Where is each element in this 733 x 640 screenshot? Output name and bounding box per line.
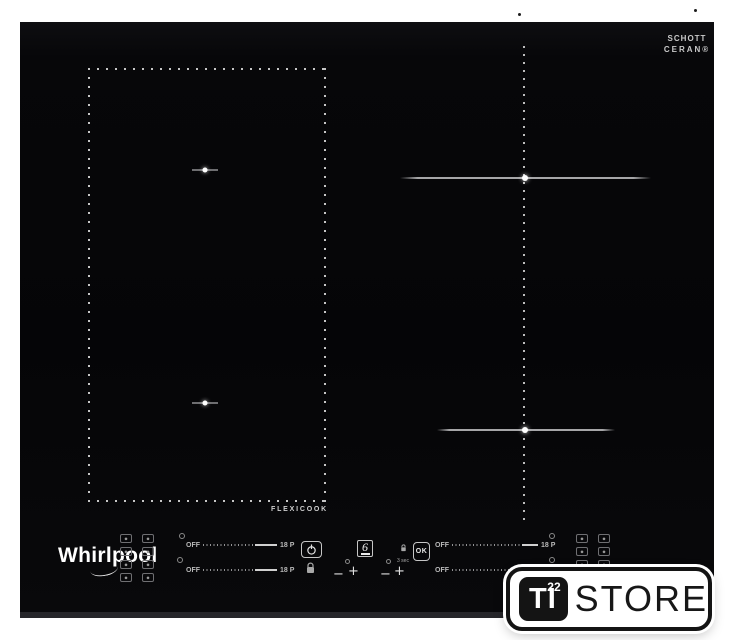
slider-off-label: OFF [186, 567, 200, 574]
timer-indicator-icon [120, 560, 132, 569]
dust-speck [518, 13, 521, 16]
timer-indicator-icon [120, 547, 132, 556]
timer-indicator-icon [576, 547, 588, 556]
power-button[interactable] [301, 541, 322, 558]
zone-power-indicator-dot [549, 533, 555, 539]
flexicook-border-right [324, 68, 326, 502]
cookware-indicator-icon [142, 560, 154, 569]
store-text: STORE [575, 578, 708, 620]
schott-logo-line2: CERAN® [660, 44, 714, 55]
ti22-badge: TI 22 [519, 577, 568, 621]
timer-indicator-icon [120, 534, 132, 543]
timer-indicator-dot [386, 559, 391, 564]
slider-solid-track[interactable] [255, 544, 277, 546]
minus-button[interactable]: − [380, 568, 391, 581]
flexicook-border-top [88, 68, 326, 70]
power-slider-front-left[interactable]: OFF 18 P [186, 541, 294, 549]
slider-solid-track[interactable] [255, 569, 277, 571]
ok-hold-hint: 3 sec [395, 539, 411, 564]
six-underline [361, 553, 370, 555]
cooktop-glass-surface: SCHOTT CERAN® FLEXICOOK Whirlpool [20, 22, 714, 618]
slider-off-label: OFF [435, 567, 449, 574]
slider-max-label: 18 P [280, 542, 294, 549]
ok-button[interactable]: OK [413, 542, 430, 561]
slider-dotted-track[interactable] [203, 569, 253, 571]
schott-ceran-logo: SCHOTT CERAN® [660, 33, 714, 55]
zone-power-indicator-dot [549, 557, 555, 563]
cookware-indicator-icon [142, 547, 154, 556]
ti22store-watermark: TI 22 STORE [506, 567, 712, 631]
timer-indicator-icon [576, 534, 588, 543]
six-glyph: 6 [362, 542, 368, 552]
slider-max-label: 18 P [541, 542, 555, 549]
minus-button[interactable]: − [333, 568, 344, 581]
slider-off-label: OFF [435, 542, 449, 549]
timer-indicator-icon [120, 573, 132, 582]
cookware-indicator-icon [142, 573, 154, 582]
slider-solid-track[interactable] [522, 544, 538, 546]
plus-button[interactable]: + [348, 565, 359, 578]
slider-dotted-track[interactable] [203, 544, 253, 546]
cookware-indicator-icon [598, 547, 610, 556]
dust-speck [694, 9, 697, 12]
power-slider-rear-left[interactable]: OFF 18 P [186, 566, 294, 574]
power-icon [306, 544, 317, 555]
slider-max-label: 18 P [280, 567, 294, 574]
zone-power-indicator-dot [179, 533, 185, 539]
flexicook-border-left [88, 68, 90, 502]
zone-power-indicator-dot [177, 557, 183, 563]
slider-off-label: OFF [186, 542, 200, 549]
cooking-zone-crossline [400, 177, 651, 179]
lock-icon [305, 562, 316, 574]
sixth-sense-icon: 6 [361, 542, 370, 555]
schott-logo-line1: SCHOTT [660, 33, 714, 44]
flexicook-label: FLEXICOOK [271, 506, 328, 513]
ok-hint-text: 3 sec [395, 558, 411, 564]
lock-icon [400, 544, 407, 552]
left-indicator-grid [120, 532, 153, 584]
ok-label: OK [416, 548, 428, 555]
zone-center-dot [203, 168, 208, 173]
power-slider-front-right[interactable]: OFF 18 P [435, 541, 555, 549]
product-photo-whirlpool-hob: SCHOTT CERAN® FLEXICOOK Whirlpool [0, 0, 733, 640]
zone-center-dot [522, 175, 528, 181]
pan-position-marker [192, 169, 218, 171]
key-lock-button[interactable] [305, 561, 316, 579]
sixth-sense-button[interactable]: 6 [357, 540, 373, 557]
zone-center-dot [522, 427, 528, 433]
zone-divider-dotted-line [523, 46, 525, 524]
pan-position-marker [192, 402, 218, 404]
plus-button[interactable]: + [394, 565, 405, 578]
cookware-indicator-icon [142, 534, 154, 543]
flexicook-border-bottom [88, 500, 326, 502]
cooking-zone-crossline [437, 429, 615, 431]
ti-superscript-22: 22 [547, 580, 560, 594]
slider-dotted-track[interactable] [452, 544, 520, 546]
zone-center-dot [203, 401, 208, 406]
flexicook-zone: FLEXICOOK [88, 68, 326, 502]
cookware-indicator-icon [598, 534, 610, 543]
